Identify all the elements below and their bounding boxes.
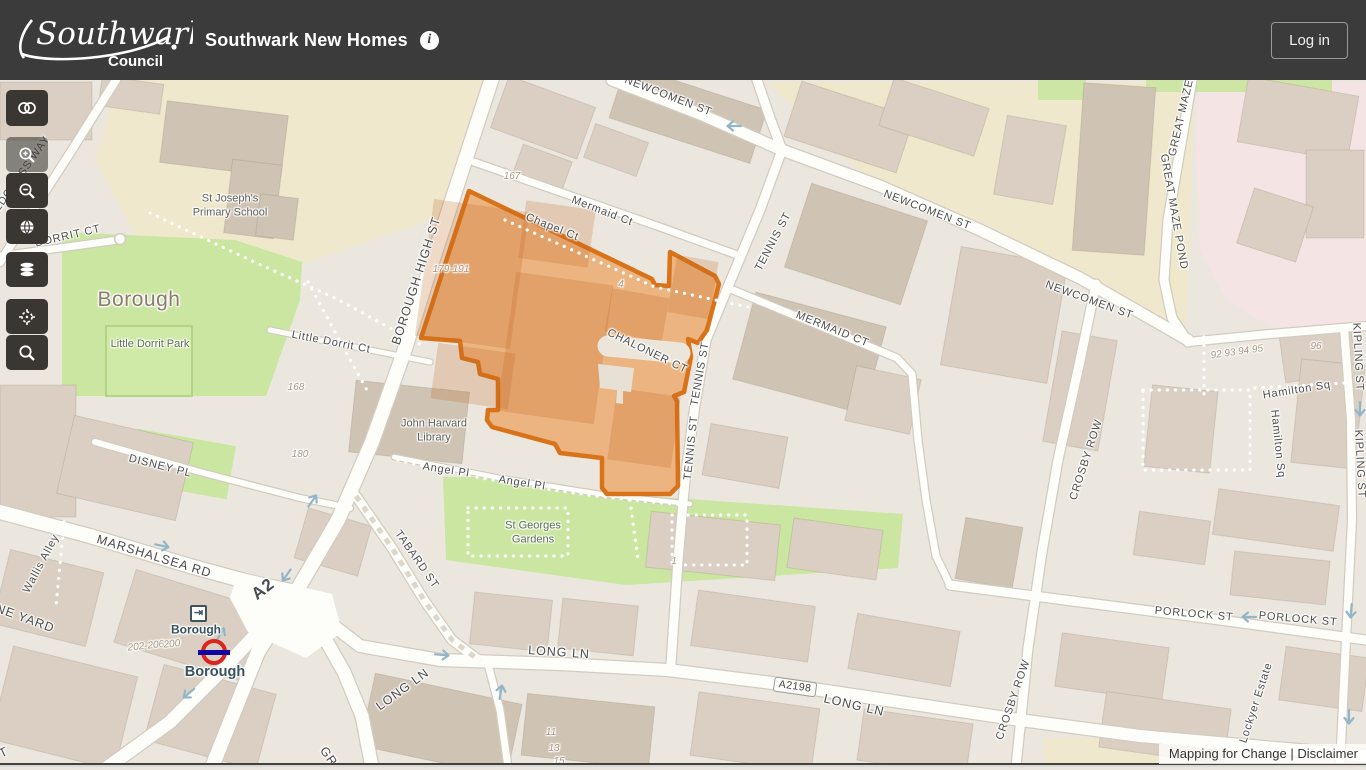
zoom-out-icon xyxy=(17,181,37,201)
attribution-link-disclaimer[interactable]: Disclaimer xyxy=(1297,746,1358,761)
logo-text-southwark: Southwark xyxy=(36,16,193,52)
crosshair-icon xyxy=(17,307,37,327)
station-entrance-icon: ⇥ xyxy=(190,605,207,622)
logo-text-council: Council xyxy=(108,53,163,70)
map-attribution: Mapping for Change | Disclaimer xyxy=(1159,744,1366,764)
info-icon[interactable]: i xyxy=(420,31,439,50)
search-icon xyxy=(17,343,37,363)
layers-icon xyxy=(17,260,37,280)
page-title: Southwark New Homes xyxy=(205,30,408,51)
locate-button[interactable] xyxy=(6,299,48,334)
attribution-separator: | xyxy=(1287,746,1298,761)
app-header: Southwark Council Southwark New Homes i … xyxy=(0,0,1366,80)
zoom-in-button[interactable] xyxy=(6,137,48,172)
underground-roundel-icon xyxy=(201,639,227,665)
attribution-link-mapping-for-change[interactable]: Mapping for Change xyxy=(1169,746,1287,761)
southwark-council-logo: Southwark Council xyxy=(8,2,193,78)
swipe-compare-button[interactable] xyxy=(6,90,48,126)
search-button[interactable] xyxy=(6,335,48,370)
zoom-in-icon xyxy=(17,145,37,165)
zoom-out-button[interactable] xyxy=(6,173,48,208)
map-canvas[interactable]: REDCROSS WAYDORRIT CTBOROUGH HIGH STMerm… xyxy=(0,0,1366,767)
swipe-icon xyxy=(16,98,38,118)
layers-button[interactable] xyxy=(6,252,48,287)
full-extent-button[interactable] xyxy=(6,209,48,244)
login-button[interactable]: Log in xyxy=(1271,22,1348,59)
globe-icon xyxy=(17,217,37,237)
